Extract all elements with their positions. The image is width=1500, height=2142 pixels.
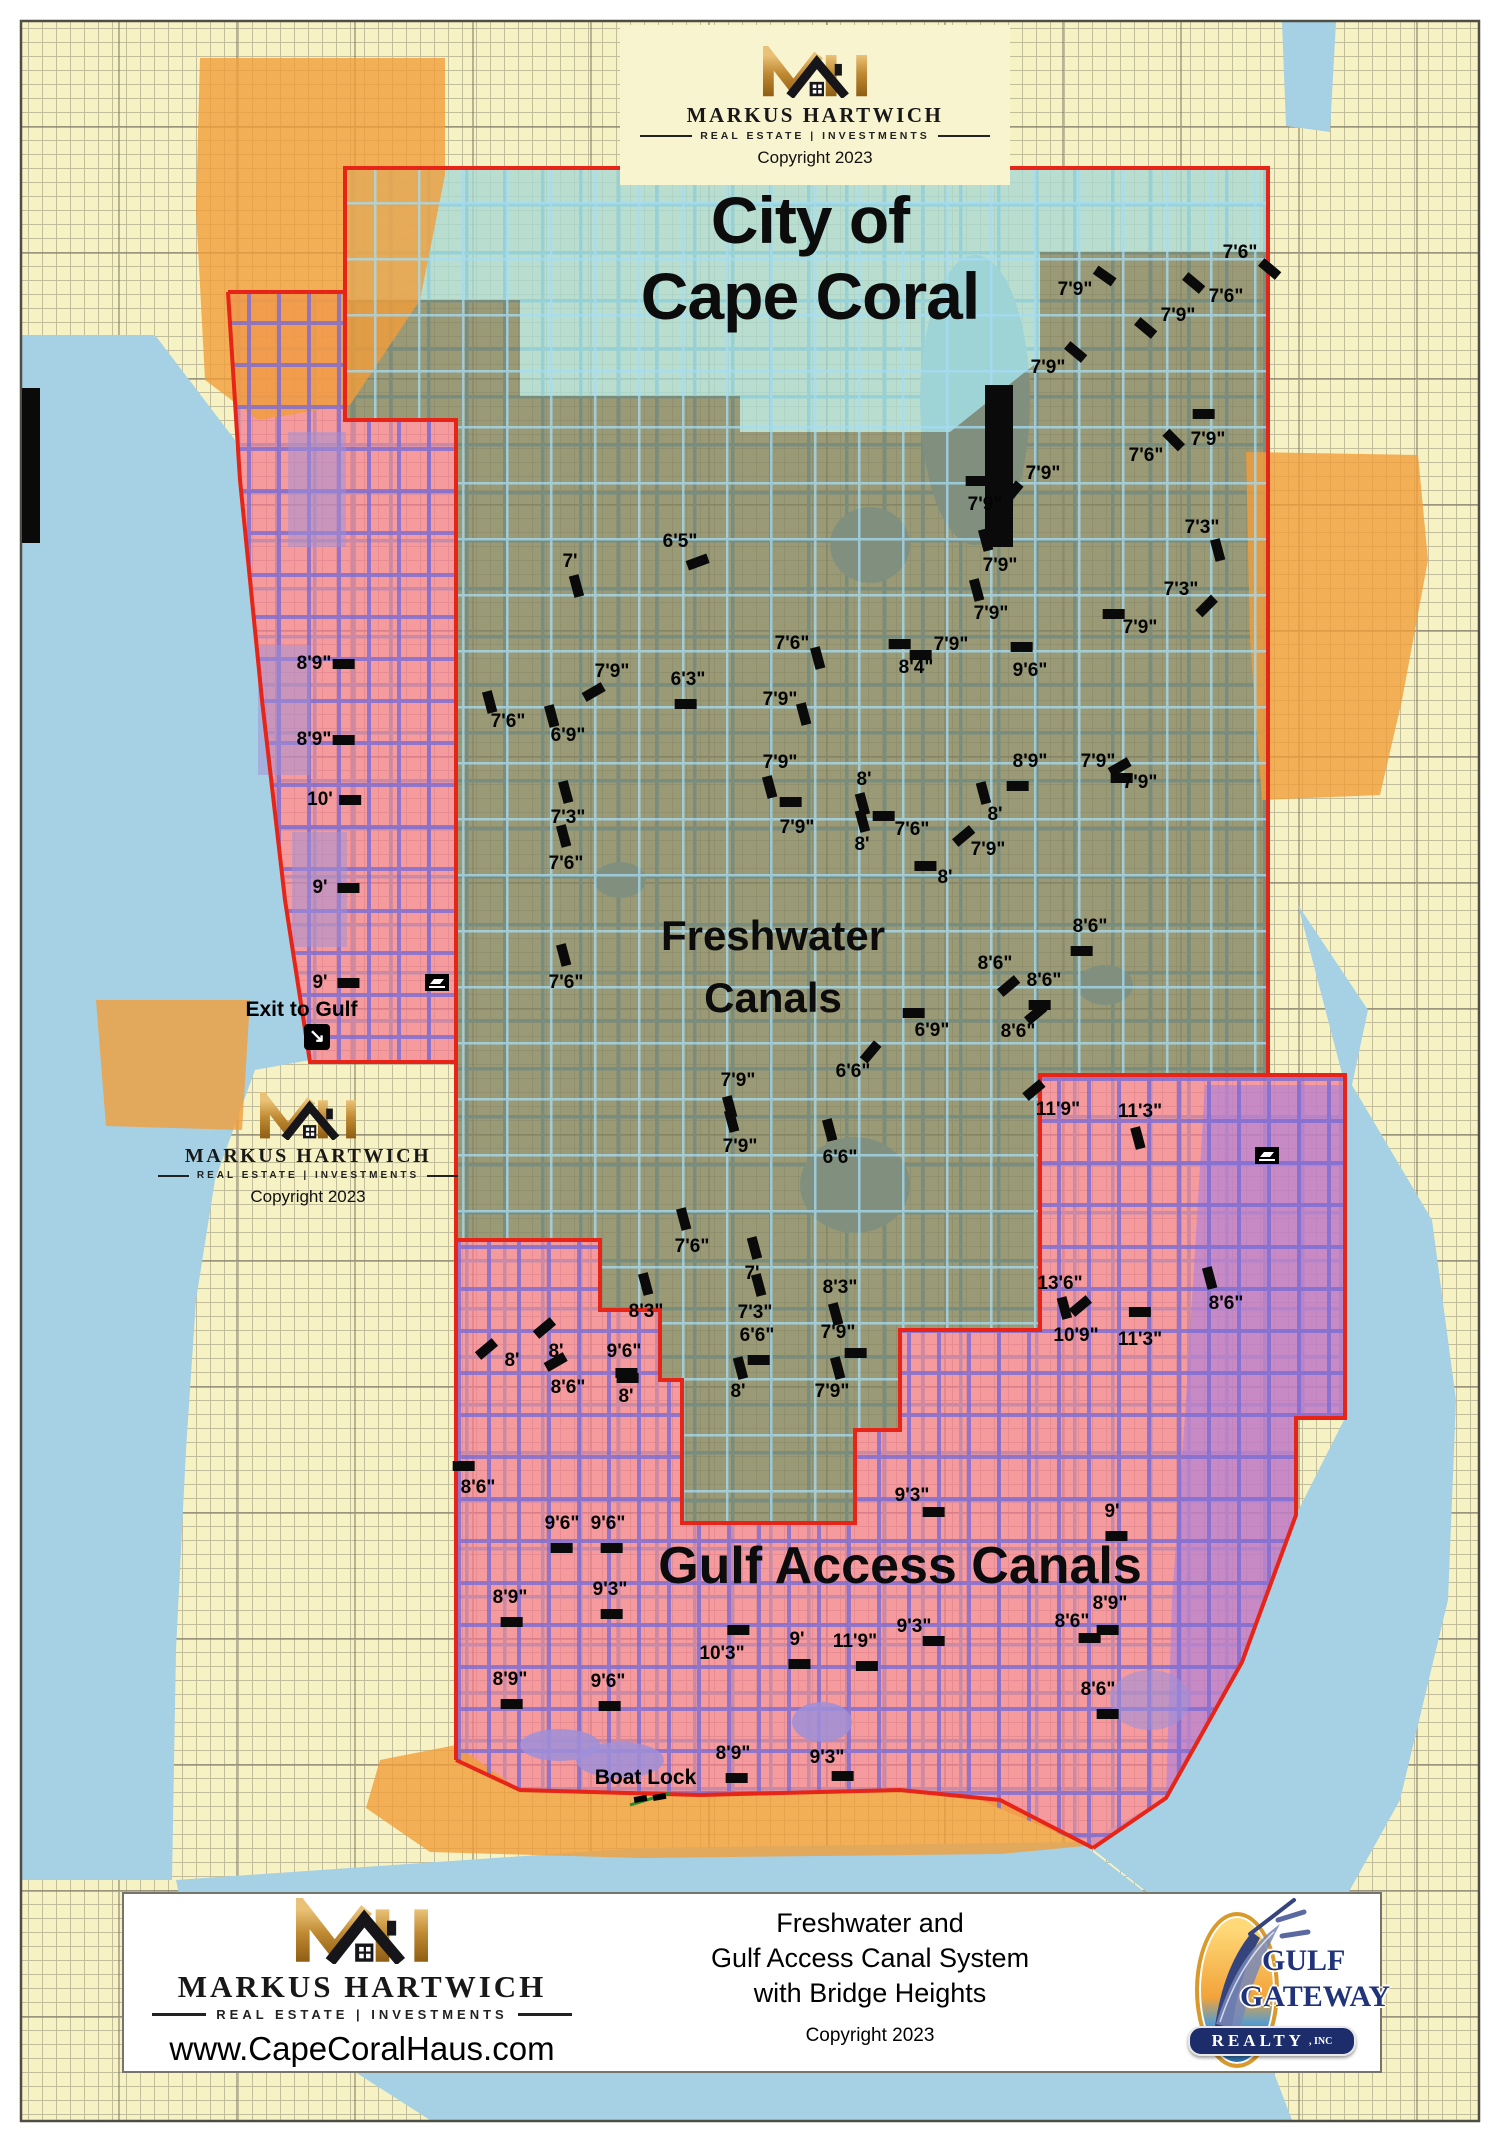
- brand-tagline: REAL ESTATE | INVESTMENTS: [216, 2007, 507, 2022]
- bridge-height-label: 10': [307, 789, 333, 810]
- bridge-height-label: 7'3": [551, 807, 586, 828]
- brand-name: MARKUS HARTWICH: [158, 1145, 458, 1168]
- bridge-marker-icon: [1129, 1307, 1151, 1317]
- page-title: City of Cape Coral: [600, 182, 1020, 334]
- bridge-height: 7'6": [549, 853, 584, 875]
- bridge-height: 9': [312, 877, 327, 899]
- bridge-height-label: 8': [504, 1350, 519, 1371]
- bridge-height: 6'6": [823, 1147, 858, 1169]
- bridge-height: 8'6": [1209, 1293, 1244, 1315]
- bridge-height: 7'9": [974, 603, 1009, 625]
- bridge-marker-icon: [780, 797, 802, 807]
- bridge-height: 8'9": [1013, 751, 1048, 773]
- bridge-marker-icon: [615, 1368, 637, 1378]
- bridge-height: 7'9": [1026, 463, 1061, 485]
- bridge-height-label: 8'6": [461, 1477, 496, 1498]
- inc-word: , INC: [1309, 2036, 1332, 2047]
- bridge-height: 7'3": [1185, 517, 1220, 539]
- bridge-height-label: 7'9": [821, 1322, 856, 1343]
- footer-title-line3: with Bridge Heights: [690, 1976, 1050, 2011]
- bridge-height-label: 11'3": [1118, 1329, 1162, 1350]
- bridge-height-label: 8'9": [493, 1669, 528, 1690]
- bridge-height: 11'9": [1036, 1099, 1080, 1121]
- bridge-height: 7'6": [675, 1236, 710, 1258]
- top-brand-block: MARKUS HARTWICH REAL ESTATE | INVESTMENT…: [640, 46, 990, 168]
- bridge-height: 7'6": [895, 819, 930, 841]
- bridge-height: 8': [730, 1381, 745, 1403]
- bridge-height-label: 10'3": [699, 1643, 744, 1664]
- bridge-height: 7'3": [1164, 579, 1199, 601]
- bridge-height: 8'9": [297, 653, 332, 675]
- bridge-marker-icon: [832, 1771, 854, 1781]
- footer-title-line2: Gulf Access Canal System: [690, 1941, 1050, 1976]
- bridge-marker-icon: [337, 883, 359, 893]
- bridge-height: 7'9": [723, 1136, 758, 1158]
- bridge-height-label: 9'3": [593, 1579, 628, 1600]
- bridge-height-label: 10'9": [1053, 1325, 1098, 1346]
- bridge-height: 8'6": [1073, 916, 1108, 938]
- bridge-height: 7'9": [1058, 279, 1093, 301]
- bridge-height: 11'3": [1118, 1101, 1162, 1123]
- bridge-marker-icon: [1007, 781, 1029, 791]
- bridge-height-label: 8'9": [493, 1587, 528, 1608]
- bridge-marker-icon: [1103, 609, 1125, 619]
- bridge-height-label: 7'6": [549, 972, 584, 993]
- bridge-height-label: 7'6": [1209, 286, 1244, 307]
- gulf-word: GULF: [1262, 1944, 1345, 1978]
- bridge-height-label: 7'9": [1191, 429, 1226, 450]
- bridge-marker-icon: [1097, 1709, 1119, 1719]
- bridge-height-label: 6'6": [823, 1147, 858, 1168]
- bridge-height: 7'9": [595, 661, 630, 683]
- bridge-height-label: 8': [854, 834, 869, 855]
- bridge-marker-icon: [333, 735, 355, 745]
- bridge-height: 9'3": [810, 1747, 845, 1769]
- bridge-height-label: 7'9": [595, 661, 630, 682]
- bridge-height: 6'3": [671, 669, 706, 691]
- bridge-height: 8'4": [899, 657, 934, 679]
- bridge-height: 9'3": [593, 1579, 628, 1601]
- bridge-height: 8'6": [1055, 1611, 1090, 1633]
- bridge-height-label: 7'3": [738, 1302, 773, 1323]
- exit-to-gulf-label: Exit to Gulf: [214, 998, 389, 1022]
- bridge-height-label: 9'3": [897, 1616, 932, 1637]
- bridge-height: 7'9": [763, 752, 798, 774]
- bridge-height: 8'9": [716, 1743, 751, 1765]
- bridge-height-label: 7'9": [983, 555, 1018, 576]
- bridge-height: 11'9": [833, 1631, 877, 1653]
- bridge-height: 8'6": [551, 1377, 586, 1399]
- bridge-height-label: 9': [312, 972, 327, 993]
- realty-word: REALTY: [1212, 2031, 1305, 2051]
- bridge-height-label: 7'9": [723, 1136, 758, 1157]
- bridge-height-label: 9'6": [591, 1671, 626, 1692]
- bridge-height-label: 9'3": [810, 1747, 845, 1768]
- bridge-height: 7'3": [738, 1302, 773, 1324]
- bridge-height-label: 9'6": [1013, 660, 1048, 681]
- bridge-height-label: 6'5": [663, 531, 698, 552]
- footer-copyright: Copyright 2023: [690, 2025, 1050, 2047]
- boat-ramp-icon: [1255, 1147, 1279, 1164]
- bridge-height-label: 8'6": [978, 953, 1013, 974]
- bridge-height-label: 8'6": [1081, 1679, 1116, 1700]
- bridge-height: 7'9": [780, 817, 815, 839]
- bridge-height: 9'6": [545, 1513, 580, 1535]
- bridge-marker-icon: [453, 1461, 475, 1471]
- bridge-height: 7'6": [775, 633, 810, 655]
- bridge-height-label: 11'3": [1118, 1101, 1162, 1122]
- bridge-height: 6'5": [663, 531, 698, 553]
- bridge-height-label: 7'9": [974, 603, 1009, 624]
- footer-title-block: Freshwater and Gulf Access Canal System …: [690, 1906, 1050, 2047]
- bridge-height-label: 9': [312, 877, 327, 898]
- footer-brand-block: MARKUS HARTWICH REAL ESTATE | INVESTMENT…: [152, 1898, 572, 2068]
- bridge-height-label: 13'6": [1037, 1273, 1082, 1294]
- gateway-word: GATEWAY: [1240, 1980, 1390, 2014]
- bridge-height-label: 11'9": [1036, 1099, 1080, 1120]
- bridge-height: 8'6": [461, 1477, 496, 1499]
- bridge-height-label: 6'6": [836, 1061, 871, 1082]
- bridge-height: 8': [618, 1386, 633, 1408]
- bridge-height-label: 7'9": [763, 752, 798, 773]
- bridge-height: 8': [937, 867, 952, 889]
- bridge-height-label: 7'9": [968, 494, 1003, 515]
- bridge-height-label: 7'6": [895, 819, 930, 840]
- brand-copyright: Copyright 2023: [158, 1187, 458, 1207]
- bridge-height-label: 8': [618, 1386, 633, 1407]
- brand-tagline: REAL ESTATE | INVESTMENTS: [197, 1170, 419, 1181]
- bridge-height-label: 8'6": [1027, 970, 1062, 991]
- water-northeast: [1282, 22, 1336, 132]
- bridge-height: 8': [504, 1350, 519, 1372]
- bridge-height-label: 7'6": [549, 853, 584, 874]
- bridge-marker-icon: [788, 1659, 810, 1669]
- bridge-height: 8'6": [978, 953, 1013, 975]
- bridge-height: 13'6": [1037, 1273, 1082, 1295]
- bridge-height: 7'6": [549, 972, 584, 994]
- bridge-height: 6'6": [740, 1325, 775, 1347]
- bridge-height: 7'9": [1161, 305, 1196, 327]
- bridge-height-label: 7'9": [1031, 357, 1066, 378]
- bridge-marker-icon: [501, 1617, 523, 1627]
- bridge-height: 9': [789, 1629, 804, 1651]
- bridge-marker-icon: [845, 1348, 867, 1358]
- bridge-height: 7'6": [1223, 242, 1258, 264]
- realty-inc-pill: REALTY , INC: [1188, 2026, 1356, 2056]
- bridge-marker-icon: [889, 639, 911, 649]
- bridge-height: 7'9": [763, 689, 798, 711]
- bridge-height: 9'6": [607, 1341, 642, 1363]
- bridge-height-label: 8': [937, 867, 952, 888]
- bridge-height: 8'9": [493, 1587, 528, 1609]
- bridge-marker-icon: [1193, 409, 1215, 419]
- bridge-height-label: 6'9": [551, 725, 586, 746]
- bridge-height-label: 7'9": [815, 1381, 850, 1402]
- bridge-marker-icon: [748, 1355, 770, 1365]
- bridge-height: 10'3": [699, 1643, 744, 1665]
- bridge-height-label: 6'3": [671, 669, 706, 690]
- brand-name: MARKUS HARTWICH: [640, 103, 990, 128]
- bridge-height-label: 8'6": [1055, 1611, 1090, 1632]
- bridge-height: 11'3": [1118, 1329, 1162, 1351]
- bridge-height: 7'9": [971, 839, 1006, 861]
- bridge-height-label: 8': [987, 804, 1002, 825]
- bridge-height-label: 8': [856, 769, 871, 790]
- brand-name: MARKUS HARTWICH: [152, 1969, 572, 2005]
- freshwater-canals-label: Freshwater Canals: [593, 905, 953, 1029]
- bridge-height-label: 9'6": [607, 1341, 642, 1362]
- bridge-height: 9'6": [591, 1513, 626, 1535]
- bridge-height-label: 7'3": [1164, 579, 1199, 600]
- bridge-height-label: 7'9": [780, 817, 815, 838]
- bridge-height-label: 8'6": [1073, 916, 1108, 937]
- bridge-height: 8': [987, 804, 1002, 826]
- bridge-height-label: 8'9": [1013, 751, 1048, 772]
- bridge-height-label: 7': [562, 551, 577, 572]
- bridge-marker-icon: [923, 1636, 945, 1646]
- bridge-height: 6'9": [551, 725, 586, 747]
- bridge-height-label: 7'9": [1123, 772, 1158, 793]
- bridge-marker-icon: [501, 1699, 523, 1709]
- bridge-height: 6'6": [836, 1061, 871, 1083]
- bridge-marker-icon: [1079, 1633, 1101, 1643]
- boat-lock-label: Boat Lock: [558, 1766, 733, 1790]
- bridge-height-label: 7'3": [1185, 517, 1220, 538]
- bridge-marker-icon: [333, 659, 355, 669]
- bridge-height: 7'9": [821, 1322, 856, 1344]
- bridge-height-label: 7'6": [1223, 242, 1258, 263]
- boat-ramp-icon: [425, 974, 449, 991]
- bridge-height-label: 8'9": [716, 1743, 751, 1764]
- bridge-height: 7'6": [491, 711, 526, 733]
- bridge-height: 9'6": [1013, 660, 1048, 682]
- bridge-height-label: 8': [730, 1381, 745, 1402]
- bridge-marker-icon: [1011, 642, 1033, 652]
- bridge-height-label: 11'9": [833, 1631, 877, 1652]
- bridge-height: 7': [562, 551, 577, 573]
- exit-arrow-icon: ↘: [304, 1024, 330, 1050]
- bridge-height: 7'9": [983, 555, 1018, 577]
- bridge-marker-icon: [337, 978, 359, 988]
- bridge-height-label: 9': [1104, 1501, 1119, 1522]
- boat-lock-icon: [628, 1790, 672, 1808]
- bridge-marker-icon: [601, 1609, 623, 1619]
- bridge-marker-icon: [873, 811, 895, 821]
- bridge-marker-icon: [339, 795, 361, 805]
- bridge-height-label: 9': [789, 1629, 804, 1650]
- bridge-height: 8'6": [1081, 1679, 1116, 1701]
- bridge-height: 7'9": [815, 1381, 850, 1403]
- brand-tagline: REAL ESTATE | INVESTMENTS: [700, 130, 930, 142]
- mh-monogram-icon: [759, 46, 871, 98]
- bridge-height: 9'3": [895, 1485, 930, 1507]
- bridge-height: 7'9": [1123, 617, 1158, 639]
- bridge-height-label: 7'6": [775, 633, 810, 654]
- bridge-height-label: 8'3": [823, 1277, 858, 1298]
- bridge-height: 7'9": [968, 494, 1003, 516]
- bridge-height: 7'6": [1129, 445, 1164, 467]
- bridge-height-label: 9'6": [545, 1513, 580, 1534]
- mid-brand-block: MARKUS HARTWICH REAL ESTATE | INVESTMENT…: [158, 1092, 458, 1207]
- bridge-height-label: 9'3": [895, 1485, 930, 1506]
- bridge-marker-icon: [1071, 946, 1093, 956]
- bridge-height: 9': [1104, 1501, 1119, 1523]
- bridge-height-label: 7'9": [971, 839, 1006, 860]
- bridge-height-label: 7'6": [1129, 445, 1164, 466]
- mh-monogram-icon: [256, 1092, 360, 1140]
- bridge-height-label: 7'9": [1026, 463, 1061, 484]
- bridge-height: 8'9": [297, 729, 332, 751]
- bridge-marker-icon: [601, 1543, 623, 1553]
- bridge-height-label: 7'9": [721, 1070, 756, 1091]
- bridge-height-label: 8'4": [899, 657, 934, 678]
- bridge-height-label: 8'9": [1093, 1593, 1128, 1614]
- bridge-marker-icon: [599, 1701, 621, 1711]
- bridge-height-label: 7'6": [675, 1236, 710, 1257]
- brand-copyright: Copyright 2023: [640, 148, 990, 168]
- bridge-height: 8'6": [1001, 1021, 1036, 1043]
- bridge-height: 7'9": [1191, 429, 1226, 451]
- bridge-height: 7'9": [1123, 772, 1158, 794]
- bridge-marker-icon: [727, 1625, 749, 1635]
- footer-title-line1: Freshwater and: [690, 1906, 1050, 1941]
- bridge-height: 8': [856, 769, 871, 791]
- bridge-height-label: 8'6": [1209, 1293, 1244, 1314]
- mh-monogram-icon: [287, 1898, 437, 1964]
- brand-website[interactable]: www.CapeCoralHaus.com: [152, 2030, 572, 2068]
- bridge-height-label: 9'6": [591, 1513, 626, 1534]
- bridge-marker-icon: [914, 861, 936, 871]
- bridge-height: 8'6": [1027, 970, 1062, 992]
- bridge-height: 8'9": [493, 1669, 528, 1691]
- bridge-marker-icon: [856, 1661, 878, 1671]
- bridge-height: 8'3": [823, 1277, 858, 1299]
- bridge-height-label: 8'6": [551, 1377, 586, 1398]
- bridge-marker-icon: [675, 699, 697, 709]
- gulf-access-canals-label: Gulf Access Canals: [640, 1536, 1160, 1596]
- bridge-height: 7'9": [934, 634, 969, 656]
- bridge-height-label: 7'9": [1123, 617, 1158, 638]
- bridge-height: 10'9": [1053, 1325, 1098, 1347]
- bridge-height: 7'9": [721, 1070, 756, 1092]
- bridge-height-label: 7'9": [1058, 279, 1093, 300]
- bridge-height-label: 8'9": [297, 653, 332, 674]
- bridge-marker-icon: [966, 476, 988, 486]
- bridge-height: 8'3": [629, 1301, 664, 1323]
- bridge-height-label: 8'9": [297, 729, 332, 750]
- bridge-height-label: 8'3": [629, 1301, 664, 1322]
- bridge-marker-icon: [923, 1507, 945, 1517]
- bridge-height: 7'6": [1209, 286, 1244, 308]
- bridge-height-label: 7'9": [763, 689, 798, 710]
- bridge-marker-icon: [551, 1543, 573, 1553]
- bridge-height: 8': [854, 834, 869, 856]
- bridge-height-label: 7'9": [1161, 305, 1196, 326]
- map-structure: [985, 385, 1013, 547]
- bridge-height: 9'6": [591, 1671, 626, 1693]
- bridge-height: 9': [312, 972, 327, 994]
- bridge-height-label: 6'6": [740, 1325, 775, 1346]
- bridge-height: 10': [307, 789, 333, 811]
- bridge-height: 7'9": [1031, 357, 1066, 379]
- bridge-height-label: 7'6": [491, 711, 526, 732]
- map-poster: MARKUS HARTWICH REAL ESTATE | INVESTMENT…: [0, 0, 1500, 2142]
- map-structure: [22, 388, 40, 543]
- bridge-height: 8'9": [1093, 1593, 1128, 1615]
- bridge-height-label: 7'9": [934, 634, 969, 655]
- bridge-height: 9'3": [897, 1616, 932, 1638]
